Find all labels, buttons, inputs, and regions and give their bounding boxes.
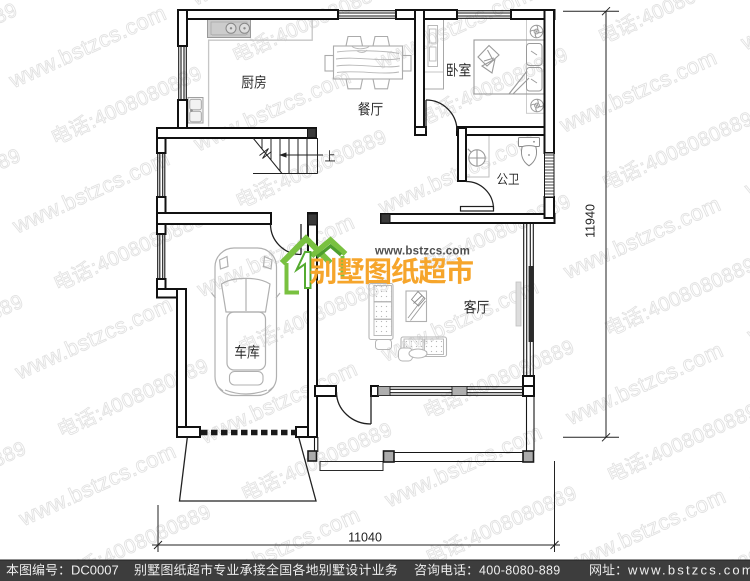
svg-text:DC0007: DC0007 [71, 563, 119, 578]
svg-text:11940: 11940 [584, 204, 598, 238]
svg-text:400-8080-889: 400-8080-889 [479, 564, 560, 578]
svg-text:www.bstzcs.com: www.bstzcs.com [627, 563, 750, 578]
svg-text:www.bstzcs.com: www.bstzcs.com [374, 246, 470, 258]
svg-text:11040: 11040 [348, 531, 382, 545]
